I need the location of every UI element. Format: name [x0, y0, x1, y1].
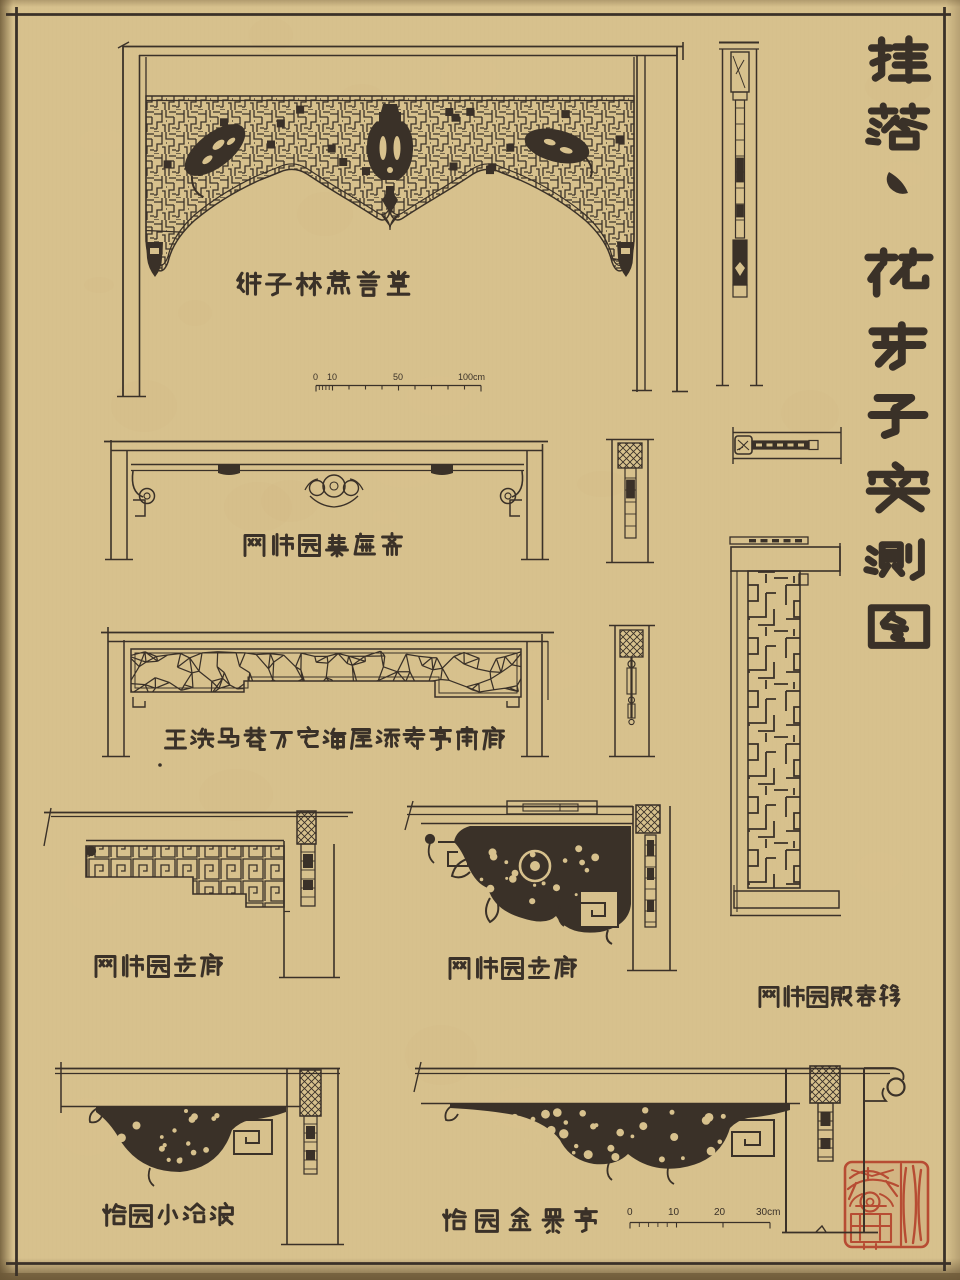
svg-text:100cm: 100cm — [458, 372, 485, 382]
svg-text:10: 10 — [668, 1207, 680, 1218]
svg-text:0: 0 — [313, 372, 318, 382]
svg-text:30cm: 30cm — [756, 1207, 780, 1218]
svg-text:50: 50 — [393, 372, 403, 382]
svg-text:20: 20 — [714, 1207, 726, 1218]
svg-text:10: 10 — [327, 372, 337, 382]
svg-text:0: 0 — [627, 1207, 633, 1218]
